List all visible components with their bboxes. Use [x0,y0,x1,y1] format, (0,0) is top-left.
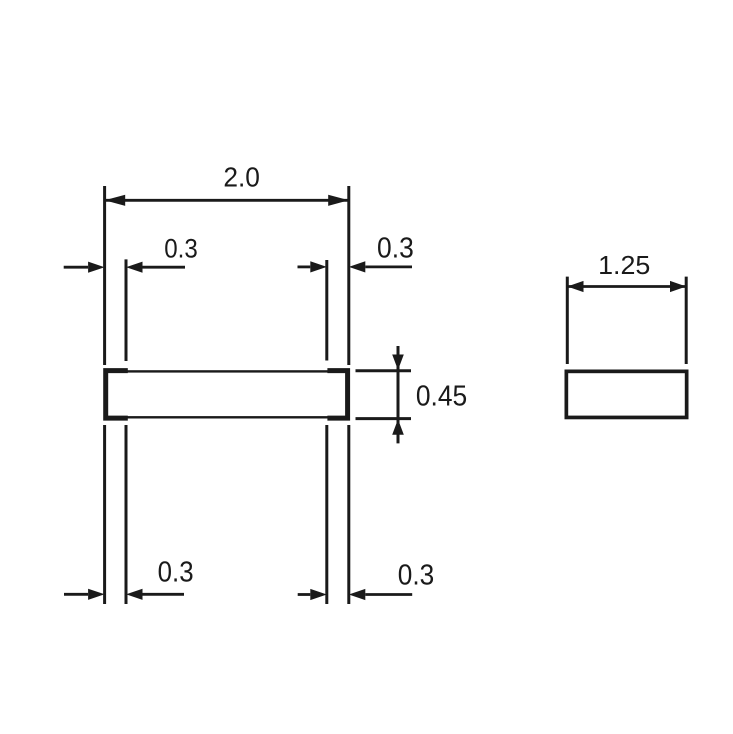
svg-text:0.3: 0.3 [158,555,194,588]
svg-text:0.3: 0.3 [377,231,414,263]
svg-text:0.3: 0.3 [164,234,198,263]
svg-text:1.25: 1.25 [598,251,650,280]
svg-text:0.45: 0.45 [416,379,467,411]
svg-text:0.3: 0.3 [398,559,434,591]
svg-text:2.0: 2.0 [223,161,260,193]
